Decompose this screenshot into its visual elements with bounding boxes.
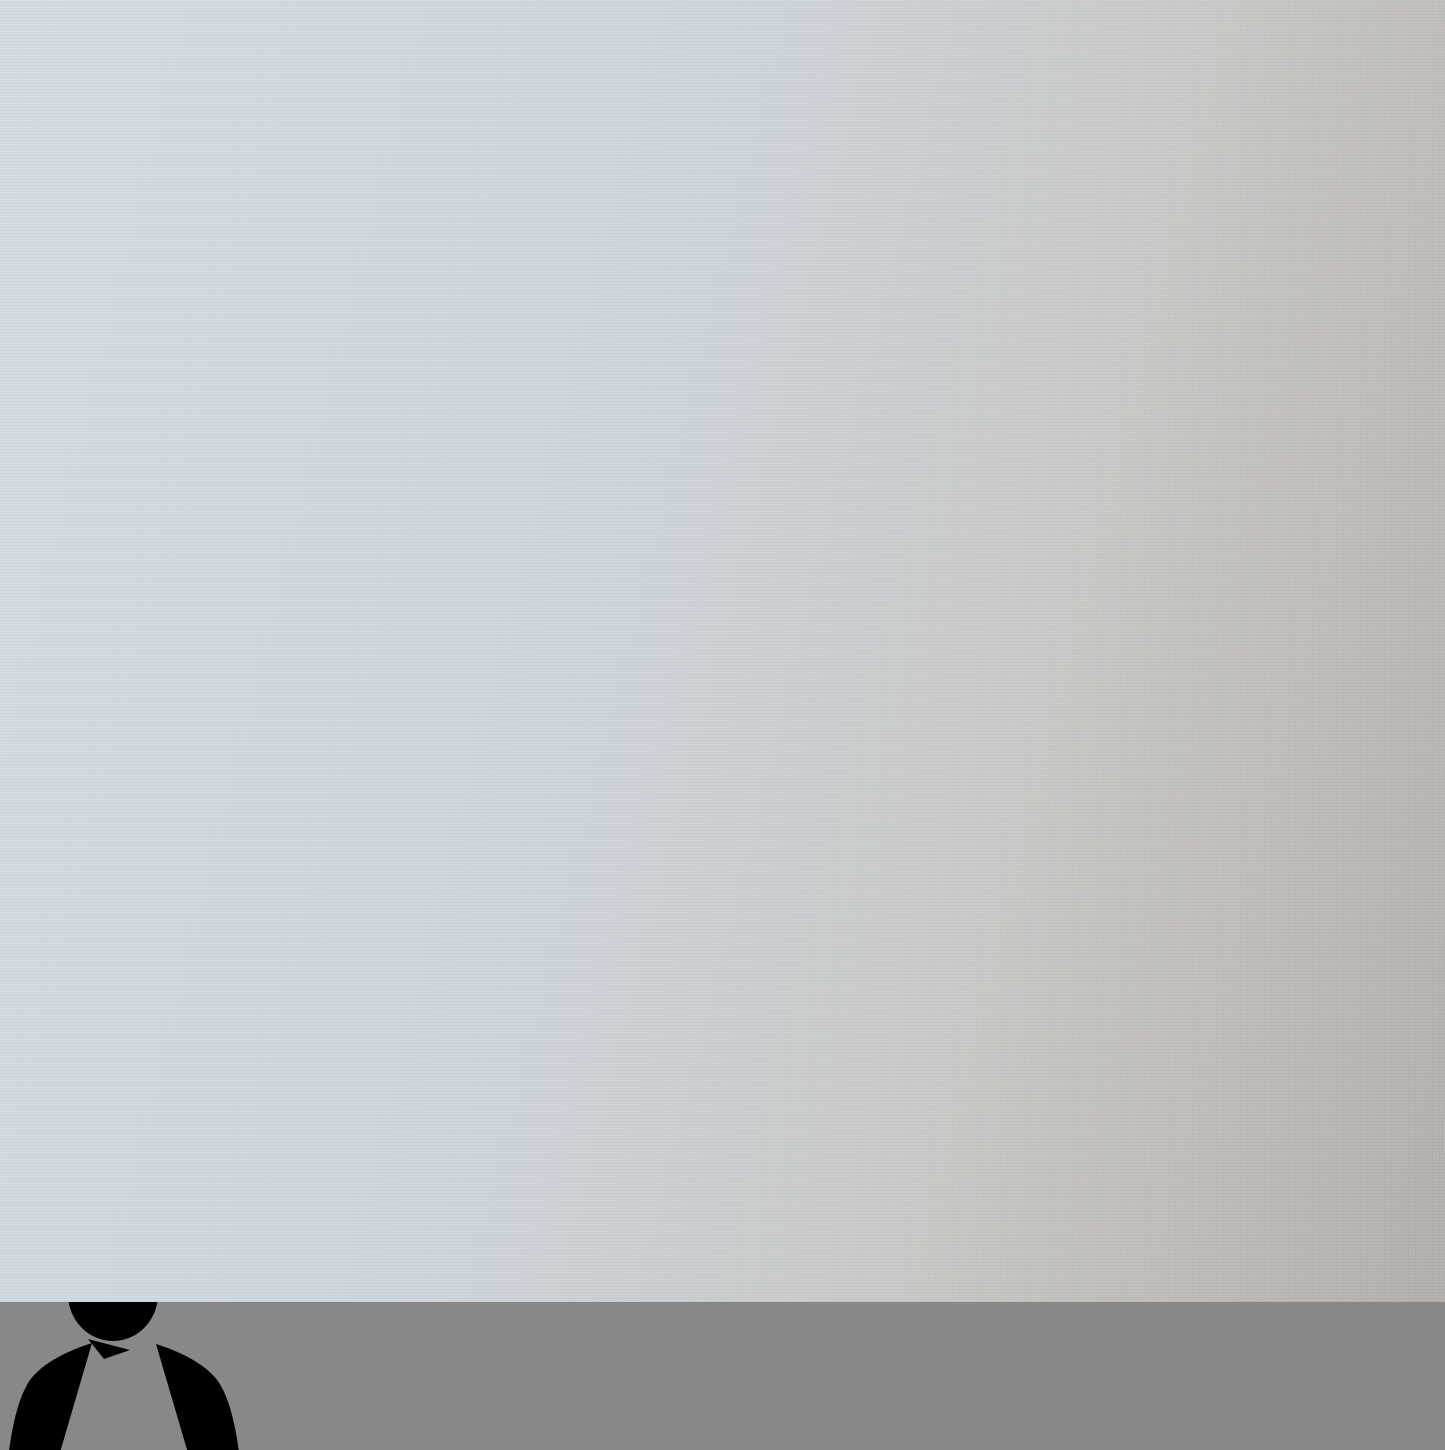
- ceiling-slat-line: [53, 0, 1392, 94]
- ceiling-slat-line: [116, 0, 1328, 94]
- ceiling-slat-line: [0, 0, 1445, 16]
- ceiling-slat-line: [9, 0, 1436, 94]
- ceiling-slat-line: [6, 0, 1439, 94]
- ceiling-slat-line: [14, 0, 1432, 94]
- ceiling-slat-line: [48, 0, 1397, 94]
- ceiling-slat-line: [38, 0, 1406, 94]
- ceiling-slat-line: [1, 0, 1445, 30]
- ceiling-slat-line: [19, 0, 1425, 94]
- ceiling-slat-line: [10, 0, 1435, 94]
- ceiling-slat-line: [0, 0, 1445, 3]
- ceiling-slat-line: [30, 0, 1415, 94]
- ceiling-slat-line: [82, 0, 1364, 94]
- ceiling-slat-line: [23, 0, 1423, 94]
- ceiling-slat-line: [1, 0, 1444, 39]
- ceiling-slat-line: [102, 0, 1343, 94]
- ceiling-slat-line: [0, 0, 1444, 25]
- ceiling-slat-line: [75, 0, 1369, 94]
- ceiling-slat-line: [2, 0, 1442, 58]
- ceiling-slat-line: [4, 0, 1442, 71]
- ceiling-slat-line: [5, 0, 1440, 85]
- ceiling-slat-line: [34, 0, 1411, 94]
- ceiling-slat-line: [11, 0, 1434, 94]
- ceiling-slat-line: [2, 0, 1443, 52]
- wall: [0, 0, 1445, 1302]
- ceiling-slat-line: [43, 0, 1402, 94]
- ceiling-slat-line: [8, 0, 1437, 94]
- ceiling-slat-line: [26, 0, 1418, 94]
- ceiling-slat-line: [88, 0, 1357, 94]
- ceiling-slat-line: [4, 0, 1440, 80]
- ceiling-slat-line: [3, 0, 1442, 66]
- ceiling-slat-line: [69, 0, 1375, 94]
- ceiling-slat-line: [0, 0, 1445, 11]
- ceiling-slat-line: [16, 0, 1428, 94]
- wood-slat-ceiling: [0, 0, 1445, 94]
- ceiling-slat-line: [58, 0, 1387, 94]
- ceiling-slat-line: [1, 0, 1443, 44]
- ceiling-slat-line: [109, 0, 1336, 94]
- ceiling-slat-line: [64, 0, 1382, 94]
- ceiling-slat-line: [95, 0, 1350, 94]
- ceiling-slat-line: [7, 0, 1438, 94]
- size-mockup-scene: 50 cm 20 inch 60 cm 24 inch 75 cm 30 inc…: [0, 0, 1445, 1450]
